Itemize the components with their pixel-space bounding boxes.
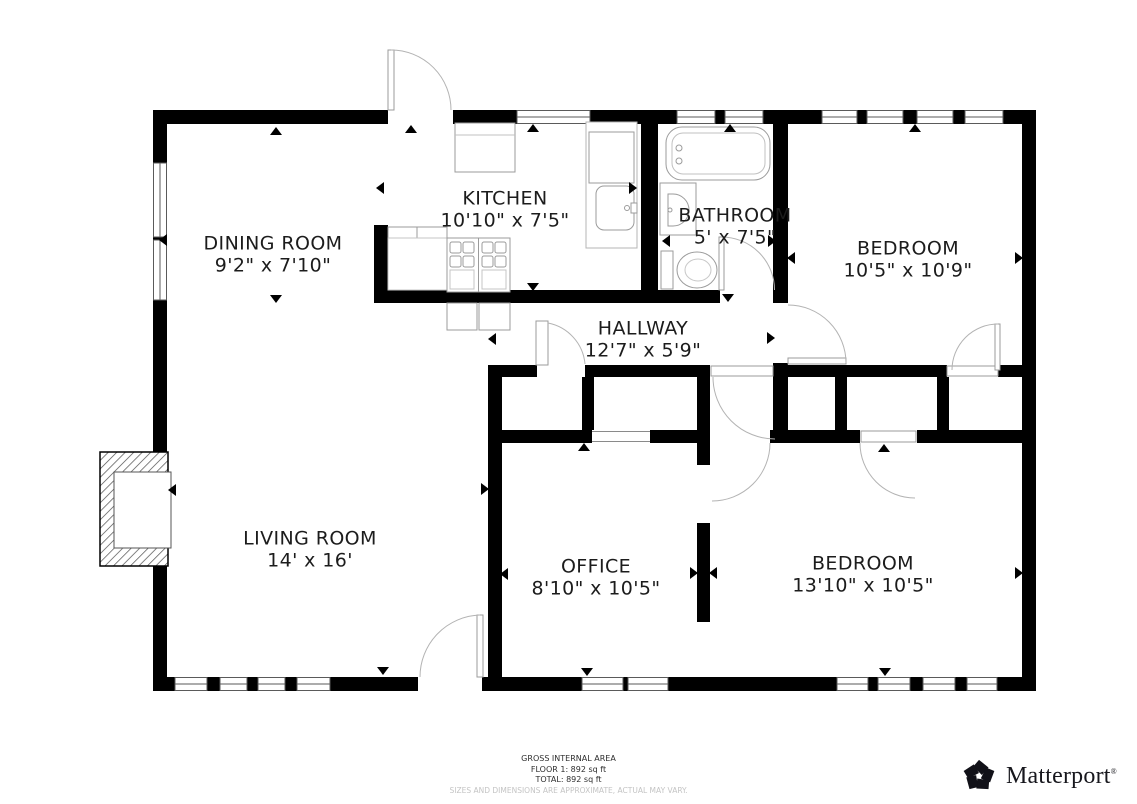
room-dims: 10'10" x 7'5" xyxy=(441,210,570,232)
window xyxy=(878,678,910,691)
bedroom1-door xyxy=(788,305,846,364)
living-door-opening xyxy=(418,677,482,691)
window xyxy=(628,678,668,691)
room-label-office: OFFICE 8'10" x 10'5" xyxy=(532,557,661,600)
marker-up xyxy=(405,125,417,133)
wall-bedroom-closet-top-a xyxy=(788,365,947,377)
refrigerator xyxy=(455,123,515,172)
wall-bedroom-closet-top-b xyxy=(998,365,1022,377)
room-dims: 10'5" x 10'9" xyxy=(844,260,973,282)
front-door xyxy=(388,50,451,110)
wall-closet-divider-b xyxy=(937,377,949,430)
floorplan-drawing xyxy=(0,0,1137,804)
marker-left xyxy=(709,567,717,579)
room-label-hallway: HALLWAY 12'7" x 5'9" xyxy=(585,319,702,362)
brand-name: Matterport® xyxy=(1006,763,1117,790)
window xyxy=(837,678,868,691)
window xyxy=(967,678,997,691)
room-name: HALLWAY xyxy=(585,319,702,341)
room-label-bathroom: BATHROOM 5' x 7'5" xyxy=(678,206,791,249)
hall-closet-door xyxy=(536,321,585,365)
wall-closet-divider-left xyxy=(582,377,594,430)
marker-up xyxy=(878,444,890,452)
room-dims: 12'7" x 5'9" xyxy=(585,340,702,362)
marker-right xyxy=(1015,252,1023,264)
toilet xyxy=(661,251,717,289)
wall-closet-divider-a xyxy=(835,377,847,430)
window xyxy=(867,111,903,124)
wall-living-office-divider xyxy=(488,365,502,691)
living-room-door xyxy=(420,615,483,677)
room-dims: 13'10" x 10'5" xyxy=(792,575,933,597)
fireplace xyxy=(100,452,171,566)
marker-right xyxy=(481,483,489,495)
bedroom1-closet-door xyxy=(947,324,1000,376)
disclaimer-text: SIZES AND DIMENSIONS ARE APPROXIMATE, AC… xyxy=(449,786,687,797)
window xyxy=(582,678,623,691)
marker-right xyxy=(1015,567,1023,579)
floorplan-page: DINING ROOM 9'2" x 7'10" KITCHEN 10'10" … xyxy=(0,0,1137,804)
window xyxy=(725,111,763,124)
marker-up xyxy=(909,124,921,132)
wall-closet-bottom-a xyxy=(488,430,592,443)
room-name: LIVING ROOM xyxy=(243,529,377,551)
matterport-pinwheel-icon xyxy=(960,756,998,796)
window xyxy=(154,163,167,237)
wall-bedroom2-top-b xyxy=(917,430,1022,443)
marker-left xyxy=(662,235,670,247)
bedroom-door-opening xyxy=(773,303,788,363)
window xyxy=(677,111,715,124)
total-area-value: TOTAL: 892 sq ft xyxy=(449,775,687,786)
wall-office-right-upper xyxy=(697,365,710,465)
marker-up xyxy=(270,127,282,135)
room-label-living-room: LIVING ROOM 14' x 16' xyxy=(243,529,377,572)
windows-layer xyxy=(154,111,1004,691)
room-dims: 8'10" x 10'5" xyxy=(532,578,661,600)
wall-right xyxy=(1022,110,1036,691)
window xyxy=(965,111,1003,124)
window xyxy=(220,678,247,691)
room-dims: 9'2" x 7'10" xyxy=(204,255,343,277)
window xyxy=(517,111,590,124)
window xyxy=(258,678,285,691)
room-name: BATHROOM xyxy=(678,206,791,228)
window xyxy=(923,678,955,691)
stove xyxy=(447,238,510,292)
floor-area-value: FLOOR 1: 892 sq ft xyxy=(449,765,687,776)
room-dims: 5' x 7'5" xyxy=(678,227,791,249)
counter-left xyxy=(388,227,447,290)
marker-up xyxy=(527,124,539,132)
window xyxy=(297,678,330,691)
room-name: KITCHEN xyxy=(441,189,570,211)
marker-down xyxy=(377,667,389,675)
room-label-bedroom-1: BEDROOM 10'5" x 10'9" xyxy=(844,239,973,282)
marker-right xyxy=(690,567,698,579)
bedroom2-entry-door xyxy=(711,366,775,501)
room-name: BEDROOM xyxy=(792,554,933,576)
window xyxy=(175,678,207,691)
marker-down xyxy=(527,283,539,291)
window xyxy=(154,240,167,300)
marker-up xyxy=(578,443,590,451)
footer: GROSS INTERNAL AREA FLOOR 1: 892 sq ft T… xyxy=(449,754,687,796)
marker-down xyxy=(270,295,282,303)
wall-kitchen-bath-divider xyxy=(641,110,658,303)
hall-closet-door-opening xyxy=(537,365,585,377)
wall-hall-closet-top-b xyxy=(585,365,710,377)
wall-office-bedroom-stub xyxy=(697,523,710,622)
marker-down xyxy=(581,668,593,676)
room-dims: 14' x 16' xyxy=(243,550,377,572)
room-name: OFFICE xyxy=(532,557,661,579)
matterport-logo: Matterport® xyxy=(960,756,1117,796)
bathtub xyxy=(666,127,770,180)
room-name: DINING ROOM xyxy=(204,234,343,256)
gross-internal-area-label: GROSS INTERNAL AREA xyxy=(449,754,687,765)
marker-down xyxy=(879,668,891,676)
front-door-opening xyxy=(388,110,453,124)
window xyxy=(917,111,953,124)
bedroom2-closet-door xyxy=(860,431,916,498)
room-name: BEDROOM xyxy=(844,239,973,261)
cabinet-peninsula xyxy=(447,303,510,330)
room-label-dining-room: DINING ROOM 9'2" x 7'10" xyxy=(204,234,343,277)
room-label-kitchen: KITCHEN 10'10" x 7'5" xyxy=(441,189,570,232)
room-label-bedroom-2: BEDROOM 13'10" x 10'5" xyxy=(792,554,933,597)
window xyxy=(822,111,857,124)
office-cased-opening xyxy=(592,430,650,443)
marker-left xyxy=(488,333,496,345)
wall-bath-bottom xyxy=(658,290,720,303)
registered-mark: ® xyxy=(1111,767,1117,776)
marker-left xyxy=(787,252,795,264)
marker-left xyxy=(376,182,384,194)
wall-bedroom2-top-a xyxy=(770,430,860,443)
